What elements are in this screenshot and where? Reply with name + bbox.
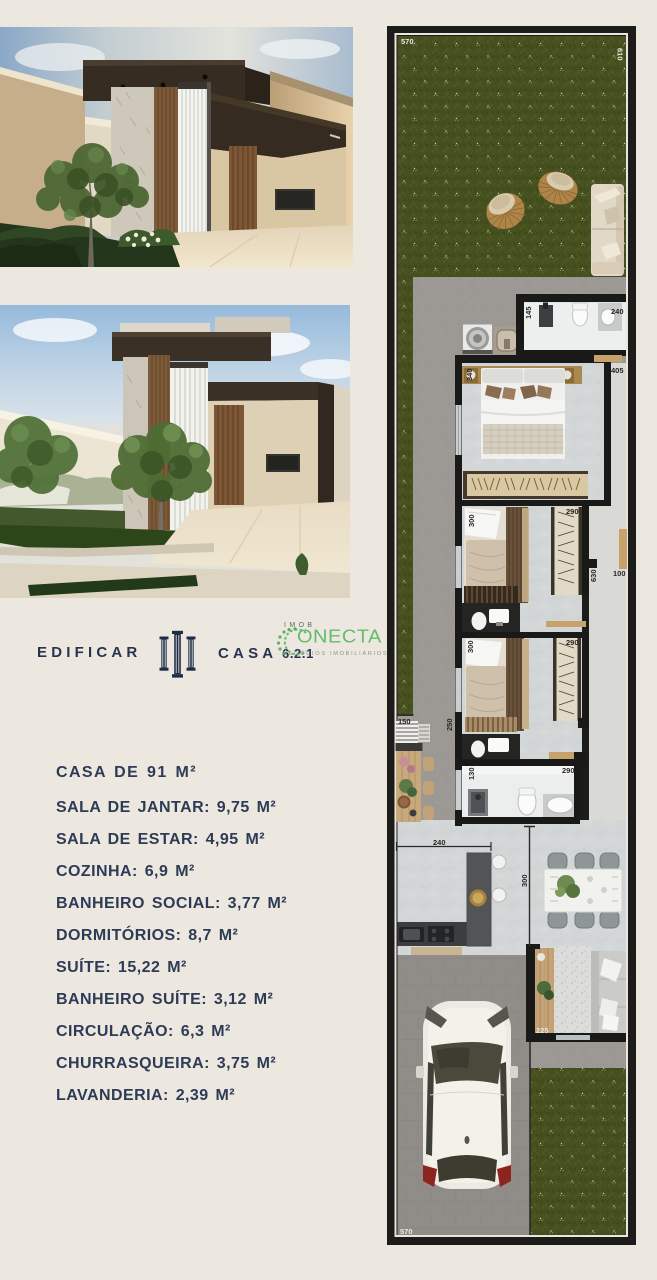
svg-text:290: 290 (566, 638, 579, 647)
svg-text:225: 225 (536, 1026, 549, 1035)
svg-text:610: 610 (616, 48, 625, 61)
svg-text:240: 240 (611, 307, 624, 316)
svg-text:150: 150 (398, 717, 411, 726)
svg-text:300: 300 (467, 514, 476, 527)
svg-text:340: 340 (465, 368, 474, 381)
svg-text:300: 300 (466, 640, 475, 653)
svg-text:570: 570 (401, 37, 414, 46)
svg-text:130: 130 (467, 767, 476, 780)
svg-text:290: 290 (566, 507, 579, 516)
svg-text:100: 100 (613, 569, 626, 578)
svg-text:300: 300 (520, 874, 529, 887)
svg-text:630: 630 (589, 569, 598, 582)
svg-text:290: 290 (562, 766, 575, 775)
svg-text:240: 240 (433, 838, 446, 847)
svg-text:570: 570 (400, 1227, 413, 1236)
svg-text:405: 405 (611, 366, 624, 375)
svg-text:145: 145 (524, 306, 533, 319)
svg-text:250: 250 (445, 718, 454, 731)
